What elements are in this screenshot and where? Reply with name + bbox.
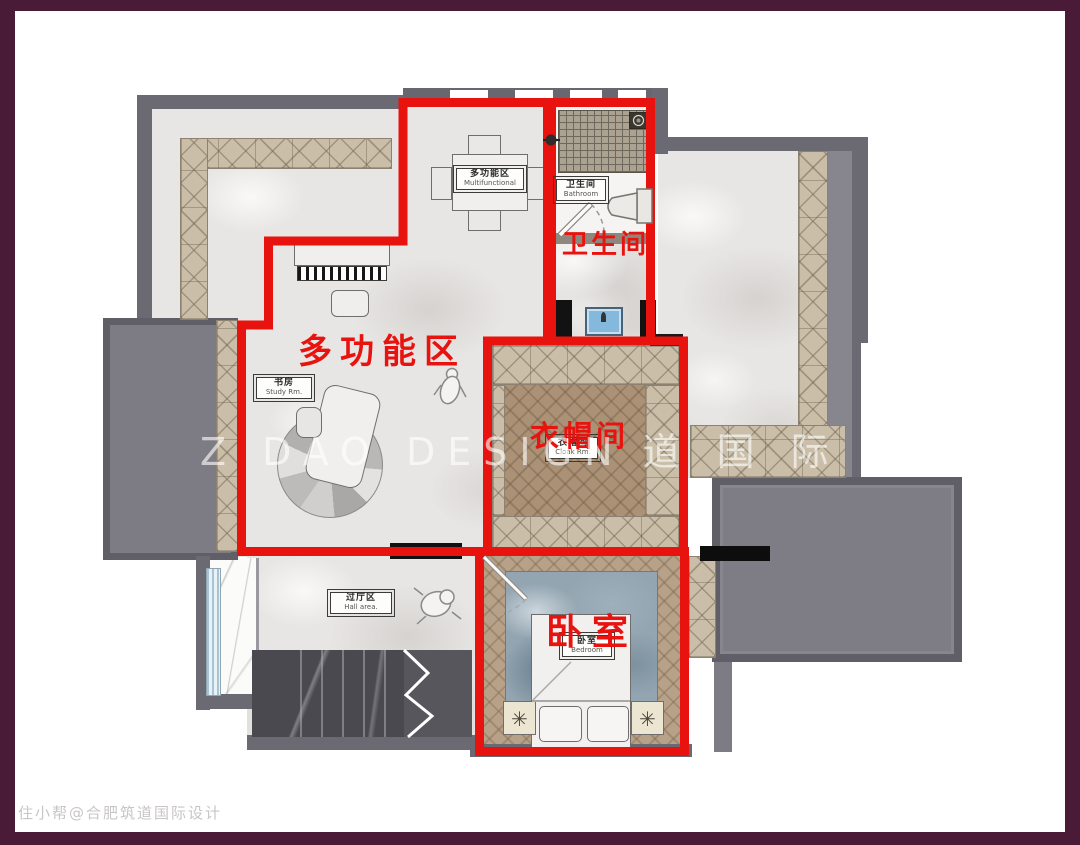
zone-title-multifunction: 多功能区 [298, 324, 466, 373]
cabinet-topleft-top [180, 138, 392, 169]
piano-bench [331, 290, 369, 317]
label-box-table: 多功能区 Multifunctional [456, 168, 524, 190]
zone-title-bedroom: 卧室 [546, 603, 638, 655]
label-en: Multifunctional [459, 180, 521, 188]
window-slit-3 [570, 90, 602, 99]
window-balcony [206, 568, 221, 696]
stair-treads [300, 650, 404, 737]
wardrobe-cloak-top [492, 343, 683, 385]
label-box-study: 书房 Study Rm. [256, 377, 312, 399]
window-slit-2 [515, 90, 553, 99]
piano-body [294, 241, 390, 266]
brand-watermark-cjk: 道 国 际 设 计 [643, 430, 989, 474]
wall-hall-bottom [247, 735, 477, 750]
ceiling-lamp-icon: ✳ [511, 707, 528, 731]
ceiling-lamp-icon: ✳ [639, 707, 656, 731]
wall-rightroom-right-upper [852, 137, 868, 343]
cabinet-right-of-bedroom [688, 556, 716, 658]
chair-bottom [468, 210, 501, 231]
floor-drain [629, 112, 648, 129]
label-box-bathroom: 卫生间 Bathroom [556, 179, 606, 201]
label-en: Bathroom [559, 191, 603, 199]
label-en: Hall area. [333, 604, 389, 612]
chair-top [468, 135, 501, 156]
brand-watermark: Z DAO DESIGN道 国 际 设 计 [200, 421, 989, 476]
label-box-hall: 过厅区 Hall area. [330, 592, 392, 614]
wall-balcony-bottom [196, 694, 254, 709]
chair-right [527, 167, 548, 200]
wall-topleft-top [137, 95, 403, 109]
pillow-right [587, 706, 629, 742]
washbasin-faucet [601, 312, 606, 322]
piano-keys [297, 266, 387, 281]
nightstand-right: ✳ [631, 701, 664, 735]
brand-watermark-latin: Z DAO DESIGN [200, 430, 625, 474]
window-slit-1 [450, 90, 488, 99]
wall-rightroom-top [652, 137, 868, 151]
credit-watermark: 住小帮@合肥筑道国际设计 [18, 802, 222, 823]
cabinet-topleft-left [180, 138, 208, 320]
bed-blanket-line [532, 700, 630, 702]
terrace-block-bottom-right [712, 477, 962, 662]
stair-void [404, 650, 472, 737]
wardrobe-cloak-bottom [492, 516, 683, 551]
wall-topleft-left [137, 95, 152, 324]
pillow-left [539, 706, 582, 742]
window-slit-4 [618, 90, 646, 99]
nightstand-left: ✳ [503, 701, 536, 735]
chair-left [431, 167, 452, 200]
framed-floor-plan: ✳ ✳ [0, 0, 1080, 845]
label-en: Study Rm. [259, 389, 309, 397]
zone-title-bathroom: 卫生间 [562, 224, 649, 261]
